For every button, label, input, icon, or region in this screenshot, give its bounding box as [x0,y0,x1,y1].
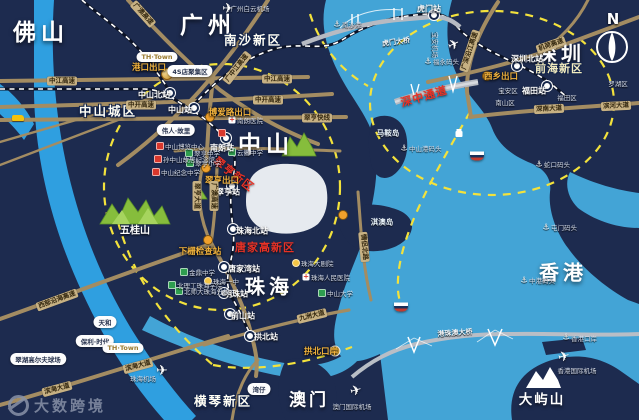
anchor-icon: ⚓ [562,333,569,342]
port-wanzai: 湾仔 [248,383,271,395]
port-zhongshan: 中山港码头 [409,143,442,153]
port-fuyong: 福永码头 [433,56,459,66]
road-cuiheng-express: 翠亨快线 [302,114,332,123]
road-binhe-avenue: 滨河大道 [601,101,631,112]
car-icon [12,115,24,121]
plane-icon: ✈ [156,364,168,378]
tag-hometown: 伟人·故里 [157,124,195,136]
anchor-icon: ⚓ [535,160,542,169]
exit-xixiang: 西乡出口 [484,70,518,82]
anchor-icon: ⚓ [400,144,407,153]
ship-icon [394,303,408,312]
anchor-icon: ⚓ [333,20,340,29]
poi-bnu-zhuhai: 北师大珠海分校 [184,286,230,296]
watermark: 大数跨境 [8,395,106,416]
city-macau: 澳门 [289,386,329,411]
estate-th-town: TH·Town [136,52,177,62]
bay-area-map: ++⚓⚓⚓⚓⚓⚓⚓✈✈✈✈✈佛山广州中山深圳珠海香港澳门横琴新区大屿山五桂山南沙… [0,0,639,420]
poi-zhuhai-opera: 珠海大剧院 [301,258,334,268]
school-marker [318,289,326,297]
area-futian: 福田区 [557,92,577,102]
road-shennan-avenue: 深南大道 [534,104,564,115]
exit-dot [203,235,213,245]
poi-jinding-school: 金鼎中学 [189,267,215,277]
landmark-marker [292,259,300,267]
city-zhuhai: 珠海 [245,271,293,300]
school-marker [180,268,188,276]
road-cuiheng-avenue: 翠亨大道 [193,181,202,211]
road-zhongkai-expwy: 中开高速 [126,101,156,110]
station-zhuhai-north: 珠海北站 [236,226,268,237]
poi-nanlang-hospital: 南朗医院 [237,115,263,125]
station-zhongshan-north: 中山北站 [138,90,170,101]
poi-cuiheng-middle-school: 翠亨中学 [194,148,220,158]
zone-tangjia-hitech: 唐家高新区 [235,239,295,255]
airport-hongkong-label: 香港国际机场 [558,365,597,375]
island-lantau: 大屿山 [519,388,566,408]
station-qianshan: 前山站 [231,311,255,322]
station-humen: 虎门站 [417,4,441,15]
port-nansha: 南沙港 [342,19,362,29]
station-zhongshan: 中山站 [168,105,192,116]
airport-zhuhai-label: 珠海机场 [130,373,156,383]
port-gongbei-gate: 拱北口岸 [304,345,338,357]
exit-dot [338,210,348,220]
scenic-marker [156,142,164,150]
area-nanshan: 南山区 [495,97,515,107]
watermark-text: 大数跨境 [34,395,106,416]
hospital-icon: + [303,274,310,281]
poi-zhuhai-no1-school: 珠海一中 [213,276,239,286]
poi-golf-course: 翠湖高尔夫球场 [10,353,66,365]
poi-sun-yatsen-university: 中山大学 [327,288,353,298]
estate-tianhe: 天和 [94,316,117,328]
district-nansha: 南沙新区 [224,30,282,49]
ship-icon [470,152,484,161]
scenic-marker [218,129,226,137]
port-hongkong-gate: 香港口岸 [571,333,597,343]
poi-zhuhai-hospital: 珠海人民医院 [311,272,350,282]
station-cuiheng: 翠亨站 [216,187,240,198]
checkpoint-xiazha: 下栅检查站 [179,245,222,257]
island-qiao: 淇澳岛 [371,217,394,228]
watermark-logo-icon [8,395,29,416]
airport-baiyun-label: 广州白云机场 [231,3,270,13]
port-shekou: 蛇口码头 [544,159,570,169]
cuiheng-white-area [246,164,327,234]
station-futian: 福田站 [522,86,546,97]
poi-yunqu-school: 云衢中学 [237,147,263,157]
scenic-marker [154,155,162,163]
airport-baoan-label: 宝安机场 [431,32,441,58]
port-tuenmun: 屯门码头 [551,222,577,232]
port-zhonggang: 中港码头 [529,275,555,285]
estate-th-town: TH·Town [102,343,143,353]
district-hengqin: 横琴新区 [194,391,252,410]
cablecar-icon [456,131,463,137]
station-gongbei: 拱北站 [254,332,278,343]
road-guangao-expwy: 广澳高速 [210,181,219,211]
station-tangjiawan: 唐家湾站 [228,264,260,275]
area-luohu: 罗湖区 [608,78,628,88]
anchor-icon: ⚓ [542,223,549,232]
island-maan: 马鞍岛 [377,128,400,139]
exit-gangkou: 港口出口 [132,61,166,73]
anchor-icon: ⚓ [520,276,527,285]
city-foshan: 佛山 [13,13,69,47]
airport-macau-label: 澳门国际机场 [333,401,372,411]
road-zhongjiang-expwy: 中江高速 [47,77,77,86]
station-shenzhen-north: 深圳北站 [511,54,543,65]
scenic-marker [152,168,160,176]
poi-cuiheng-primary-school: 翠亨小学 [195,158,221,168]
compass-north-label: N [607,10,620,28]
road-zhongjiang-expwy: 中江高速 [262,75,292,84]
poi-zhongshan-memorial-school: 中山纪念中学 [161,167,200,177]
mountain-wugui-label: 五桂山 [120,222,150,237]
area-baoan: 宝安区 [498,85,518,95]
road-zhongkai-expwy: 中开高速 [253,96,283,105]
tag-4s-zone: 4S店聚集区 [167,65,212,77]
